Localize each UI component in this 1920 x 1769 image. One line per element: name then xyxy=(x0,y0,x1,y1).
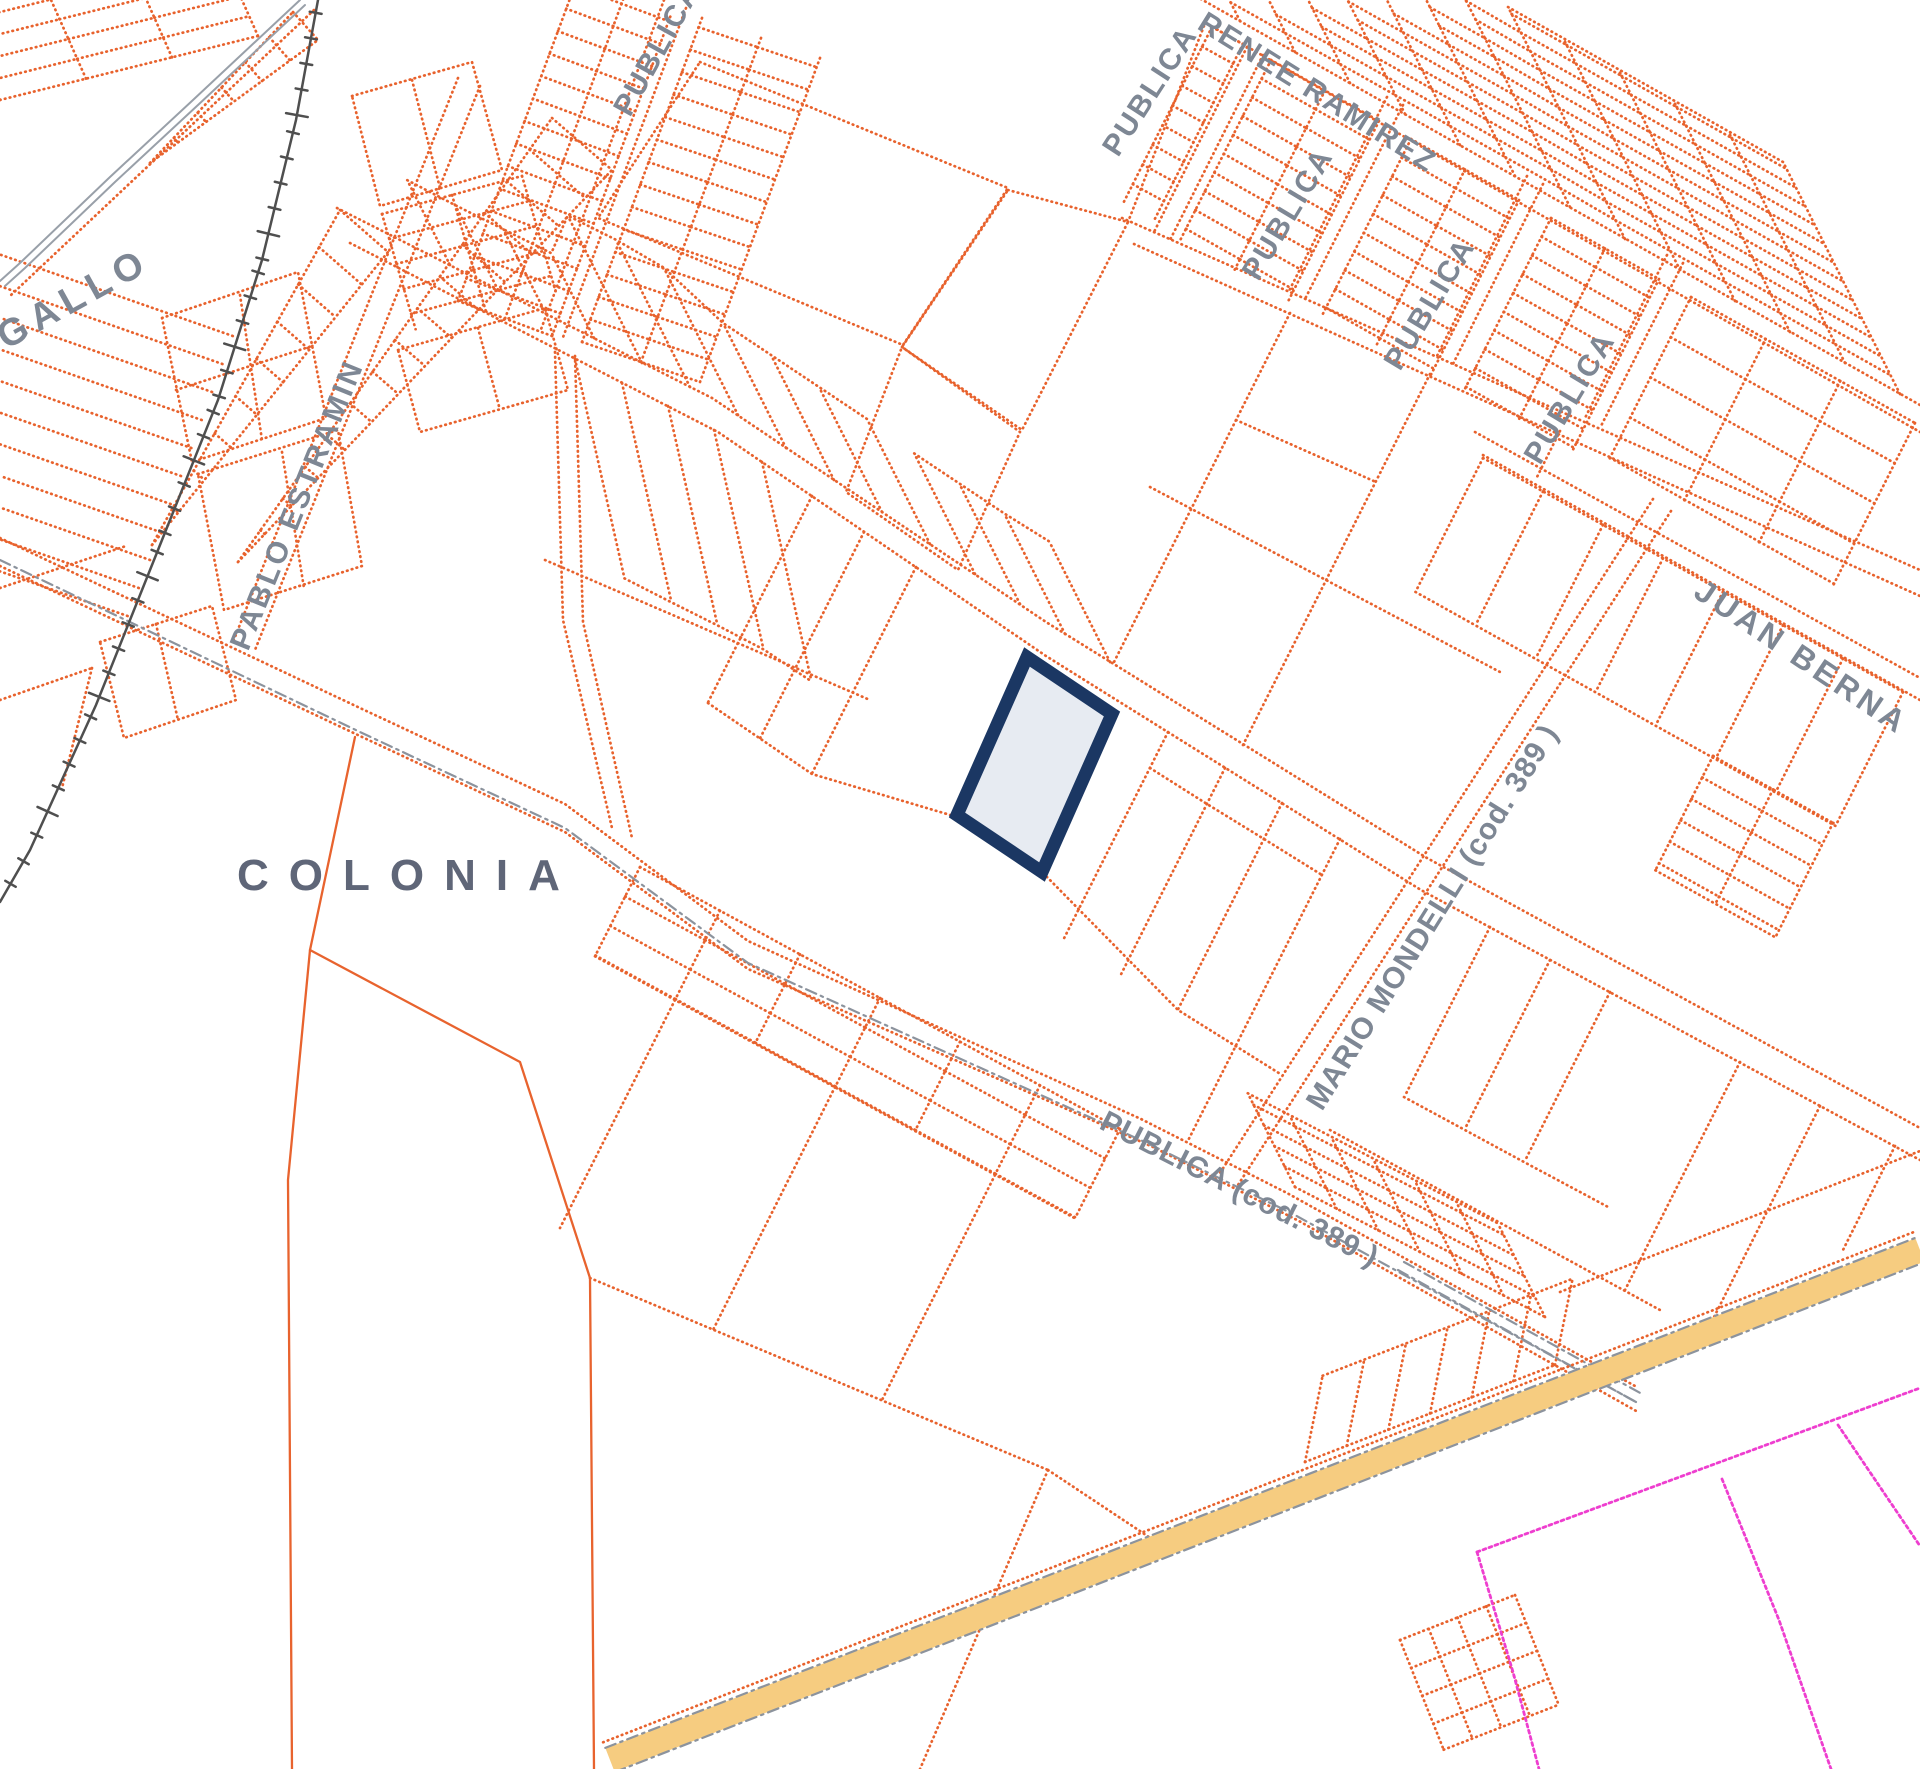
map-viewport[interactable]: GALLOPABLO ESTRAMINPUBLICAPUBLICAPUBLICA… xyxy=(0,0,1920,1769)
street-label: PUBLICA xyxy=(1518,326,1622,469)
admin-boundaries xyxy=(1477,1388,1920,1769)
cadastral-map[interactable]: GALLOPABLO ESTRAMINPUBLICAPUBLICAPUBLICA… xyxy=(0,0,1920,1769)
highlighted-parcel[interactable] xyxy=(957,657,1112,872)
highway-road xyxy=(603,1232,1920,1769)
street-label: GALLO xyxy=(0,240,157,358)
street-label: MARIO MONDELLI (cod. 389 ) xyxy=(1300,719,1565,1116)
street-label: PABLO ESTRAMIN xyxy=(224,355,371,655)
railway-line xyxy=(0,0,322,902)
street-label: PUBLICA xyxy=(607,0,707,121)
street-label: PUBLICA (cod. 389 ) xyxy=(1095,1105,1384,1274)
map-labels: GALLOPABLO ESTRAMINPUBLICAPUBLICAPUBLICA… xyxy=(0,0,1915,1274)
street-label: PUBLICA xyxy=(1236,142,1340,285)
area-label: COLONIA xyxy=(237,851,580,900)
secondary-roads xyxy=(0,0,1642,1402)
